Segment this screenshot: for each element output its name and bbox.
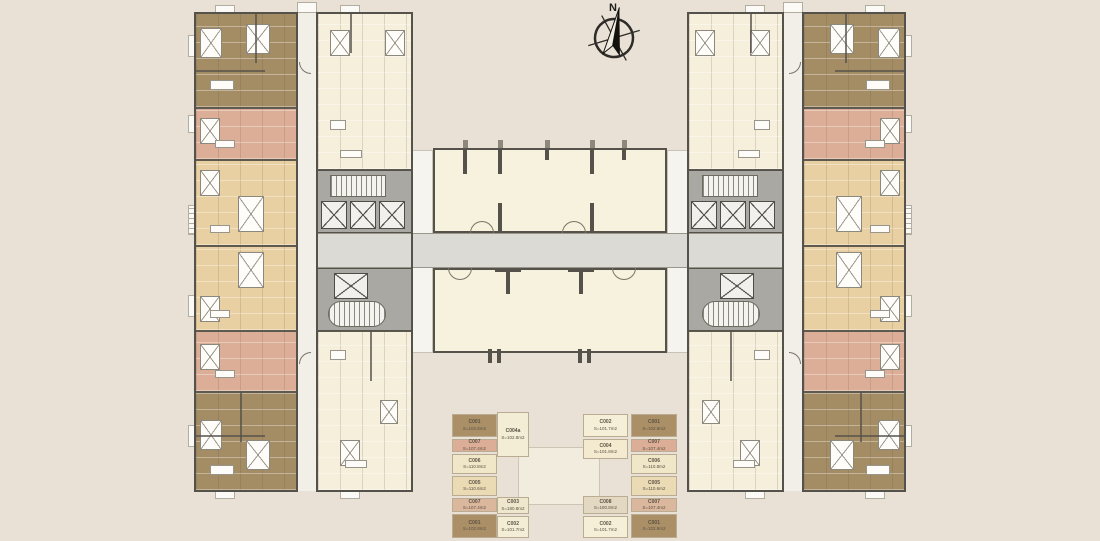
wall-stub: [622, 148, 626, 160]
interior-wall: [845, 13, 847, 63]
legend-cell: C002S=101.7m2: [583, 414, 628, 437]
furniture: [340, 150, 362, 158]
bed-icon: [702, 400, 720, 424]
legend-unit-area: S=101.7m2: [594, 527, 617, 533]
legend-cell: C004aS=102.8m2: [497, 412, 529, 457]
legend: C001S=102.8m2 C007S=107.4m2 C006S=110.8m…: [450, 410, 680, 541]
wall-stub: [506, 268, 510, 294]
vent-tick: [463, 140, 468, 148]
interior-wall: [370, 331, 372, 381]
balcony: [904, 425, 912, 447]
furniture: [210, 225, 230, 233]
legend-column-right-outer: C001S=102.8m2 C007S=107.4m2 C006S=110.8m…: [631, 410, 677, 541]
wall-stub: [590, 148, 594, 174]
legend-unit-area: S=101.8m2: [594, 449, 617, 455]
legend-unit-area: S=110.8m2: [643, 464, 666, 470]
balcony: [904, 205, 912, 235]
vent-tick: [622, 140, 627, 148]
bed-icon: [200, 344, 220, 370]
bed-icon: [330, 30, 350, 56]
balcony: [340, 5, 360, 13]
legend-unit-area: S=110.8m2: [463, 464, 486, 470]
legend-unit-area: S=101.7m2: [594, 426, 617, 432]
hall-lower: [433, 268, 667, 353]
balcony: [904, 295, 912, 317]
balcony: [904, 35, 912, 57]
furniture: [210, 80, 234, 90]
interior-wall: [195, 70, 265, 72]
bed-icon: [830, 24, 854, 54]
staircase-icon: [702, 175, 758, 197]
bed-icon: [836, 196, 862, 232]
bed-icon: [200, 296, 220, 322]
balcony: [865, 5, 885, 13]
elevator-icon: [321, 201, 347, 229]
shaft-stub: [297, 2, 317, 13]
wall-stub: [498, 203, 502, 233]
vent-tick: [498, 140, 503, 148]
furniture: [865, 140, 885, 148]
legend-unit-area: S=102.8m2: [463, 426, 486, 432]
legend-cell: C005S=110.6m2: [631, 476, 677, 496]
legend-unit-area: S=107.4m2: [463, 446, 486, 452]
legend-unit-area: S=110.6m2: [643, 486, 666, 492]
legend-cell: C007S=107.4m2: [631, 498, 677, 512]
wall-stub: [498, 148, 502, 174]
furniture: [215, 370, 235, 378]
interior-wall: [730, 331, 732, 381]
elevator-icon: [334, 273, 368, 299]
bed-icon: [246, 24, 270, 54]
furniture: [870, 225, 890, 233]
furniture: [754, 120, 770, 130]
legend-cell: C006S=110.8m2: [631, 454, 677, 474]
legend-cell: C008S=180.8m2: [583, 496, 628, 514]
bed-icon: [238, 196, 264, 232]
balcony: [215, 5, 235, 13]
wall-post: [578, 349, 582, 363]
balcony: [188, 35, 196, 57]
elevator-icon: [720, 201, 746, 229]
interior-wall: [835, 435, 905, 437]
legend-cell: C001S=102.8m2: [631, 514, 677, 538]
legend-cell: C007S=107.4m2: [452, 498, 497, 512]
legend-unit-area: S=102.8m2: [501, 435, 524, 441]
wall-stub: [590, 203, 594, 233]
legend-cell: C006S=110.8m2: [452, 454, 497, 474]
legend-column-left-middle: C004aS=102.8m2 C003S=180.8m2 C002S=101.7…: [497, 410, 529, 541]
legend-unit-area: S=180.8m2: [594, 505, 617, 511]
bed-icon: [830, 440, 854, 470]
interior-wall: [350, 13, 352, 53]
bed-icon: [200, 28, 222, 58]
furniture: [330, 120, 346, 130]
legend-unit-area: S=110.6m2: [463, 486, 486, 492]
bed-icon: [880, 296, 900, 322]
interior-wall: [195, 435, 265, 437]
bed-icon: [385, 30, 405, 56]
corridor-horizontal: [317, 233, 783, 268]
furniture: [345, 460, 367, 468]
legend-cell: C007S=107.4m2: [452, 439, 497, 452]
bed-icon: [880, 170, 900, 196]
furniture: [210, 465, 234, 475]
furniture: [215, 140, 235, 148]
bed-icon: [878, 28, 900, 58]
balcony: [188, 205, 196, 235]
interior-wall: [750, 13, 752, 53]
staircase-icon: [330, 175, 386, 197]
shaft-stub: [783, 2, 803, 13]
hall-upper: [433, 148, 667, 233]
bed-icon: [695, 30, 715, 56]
elevator-icon: [350, 201, 376, 229]
legend-unit-area: S=102.8m2: [642, 426, 665, 432]
legend-unit-area: S=180.8m2: [501, 506, 524, 512]
elevator-icon: [749, 201, 775, 229]
bed-icon: [836, 252, 862, 288]
balcony: [745, 5, 765, 13]
balcony: [904, 115, 912, 133]
legend-cell: C003S=180.8m2: [497, 497, 529, 514]
legend-column-left-outer: C001S=102.8m2 C007S=107.4m2 C006S=110.8m…: [452, 410, 497, 541]
bed-icon: [200, 170, 220, 196]
legend-unit-area: S=107.4m2: [642, 505, 665, 511]
bed-icon: [380, 400, 398, 424]
legend-cell: C002S=101.7m2: [583, 516, 628, 538]
legend-cell: C004S=101.8m2: [583, 439, 628, 459]
balcony: [865, 491, 885, 499]
furniture: [870, 310, 890, 318]
compass-icon: N: [583, 1, 645, 65]
legend-cell: C001S=102.8m2: [452, 514, 497, 538]
wall-stub: [545, 148, 549, 160]
wall-post: [497, 349, 501, 363]
interior-wall: [255, 13, 257, 63]
floor-plan: N C001S=102.8m2 C007S=107.4m2 C006S=110.…: [0, 0, 1100, 541]
legend-cell: C001S=102.8m2: [631, 414, 677, 437]
legend-cell: C001S=102.8m2: [452, 414, 497, 437]
furniture: [754, 350, 770, 360]
furniture: [866, 465, 890, 475]
elevator-icon: [379, 201, 405, 229]
bed-icon: [246, 440, 270, 470]
balcony: [188, 115, 196, 133]
legend-unit-area: S=107.4m2: [642, 446, 665, 452]
legend-unit-area: S=107.4m2: [463, 505, 486, 511]
furniture: [733, 460, 755, 468]
balcony: [340, 491, 360, 499]
elevator-icon: [691, 201, 717, 229]
interior-wall: [835, 70, 905, 72]
legend-unit-area: S=102.8m2: [642, 526, 665, 532]
staircase-icon: [328, 301, 386, 327]
wall-post: [587, 349, 591, 363]
bed-icon: [238, 252, 264, 288]
elevator-icon: [720, 273, 754, 299]
vent-tick: [545, 140, 550, 148]
furniture: [866, 80, 890, 90]
corridor-vertical: [297, 13, 317, 491]
staircase-icon: [702, 301, 760, 327]
furniture: [210, 310, 230, 318]
legend-unit-area: S=102.8m2: [463, 526, 486, 532]
wall-post: [488, 349, 492, 363]
wall-stub: [463, 148, 467, 174]
legend-cell: C007S=107.4m2: [631, 439, 677, 452]
legend-column-right-middle: C002S=101.7m2 C004S=101.8m2 C008S=180.8m…: [583, 410, 628, 541]
balcony: [745, 491, 765, 499]
legend-cell: C002S=101.7m2: [497, 516, 529, 538]
furniture: [865, 370, 885, 378]
balcony: [188, 295, 196, 317]
wall-stub: [579, 268, 583, 294]
vent-tick: [590, 140, 595, 148]
balcony: [215, 491, 235, 499]
legend-cell: C005S=110.6m2: [452, 476, 497, 496]
corridor-vertical: [783, 13, 803, 491]
legend-unit-area: S=101.7m2: [501, 527, 524, 533]
bed-icon: [880, 344, 900, 370]
bed-icon: [750, 30, 770, 56]
compass-north-label: N: [609, 2, 617, 14]
furniture: [738, 150, 760, 158]
furniture: [330, 350, 346, 360]
